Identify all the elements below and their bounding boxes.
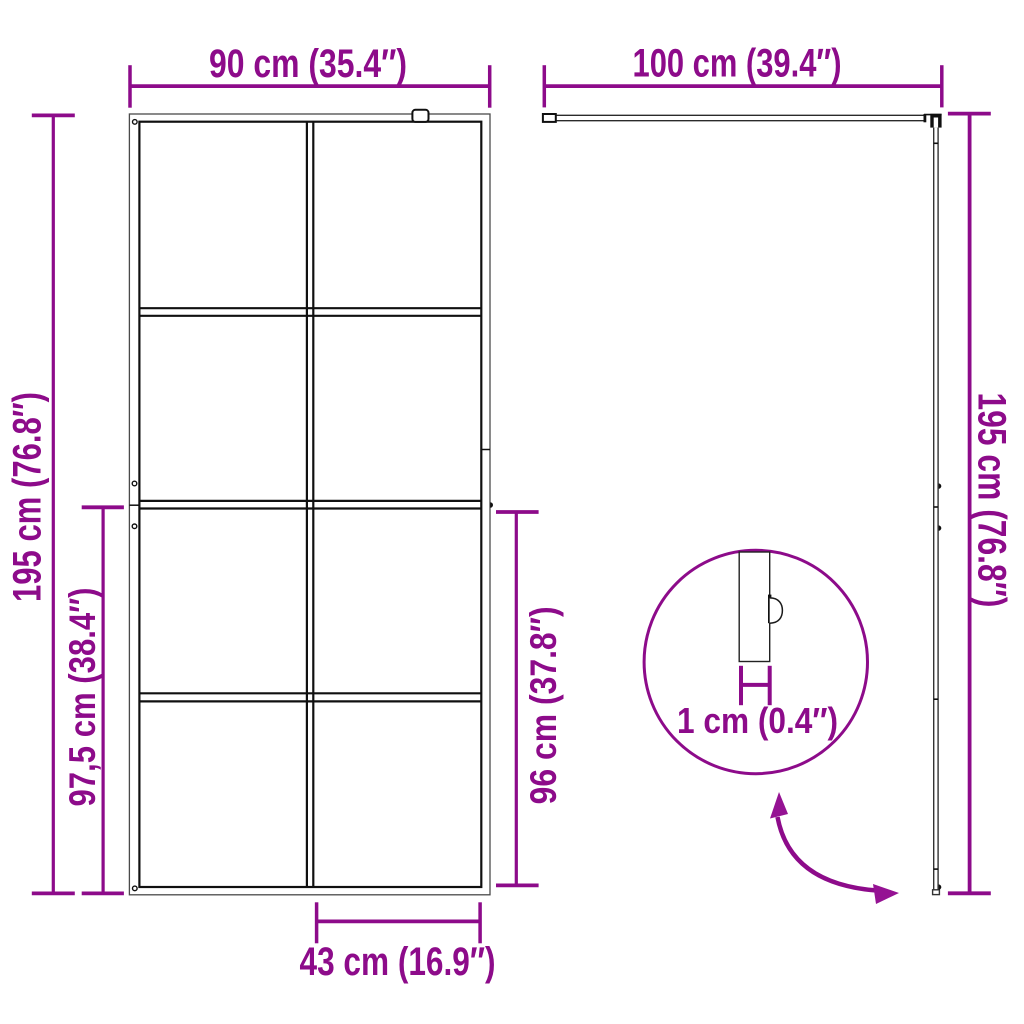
svg-text:97,5 cm (38.4″): 97,5 cm (38.4″) [62, 588, 103, 807]
svg-text:195 cm (76.8″): 195 cm (76.8″) [6, 392, 50, 602]
svg-text:90 cm (35.4″): 90 cm (35.4″) [209, 42, 407, 86]
svg-text:195 cm (76.8″): 195 cm (76.8″) [970, 393, 1014, 608]
svg-text:43 cm (16.9″): 43 cm (16.9″) [300, 940, 496, 984]
svg-text:100 cm (39.4″): 100 cm (39.4″) [633, 42, 842, 86]
svg-text:1 cm (0.4″): 1 cm (0.4″) [677, 700, 838, 741]
svg-text:96 cm (37.8″): 96 cm (37.8″) [523, 606, 564, 804]
